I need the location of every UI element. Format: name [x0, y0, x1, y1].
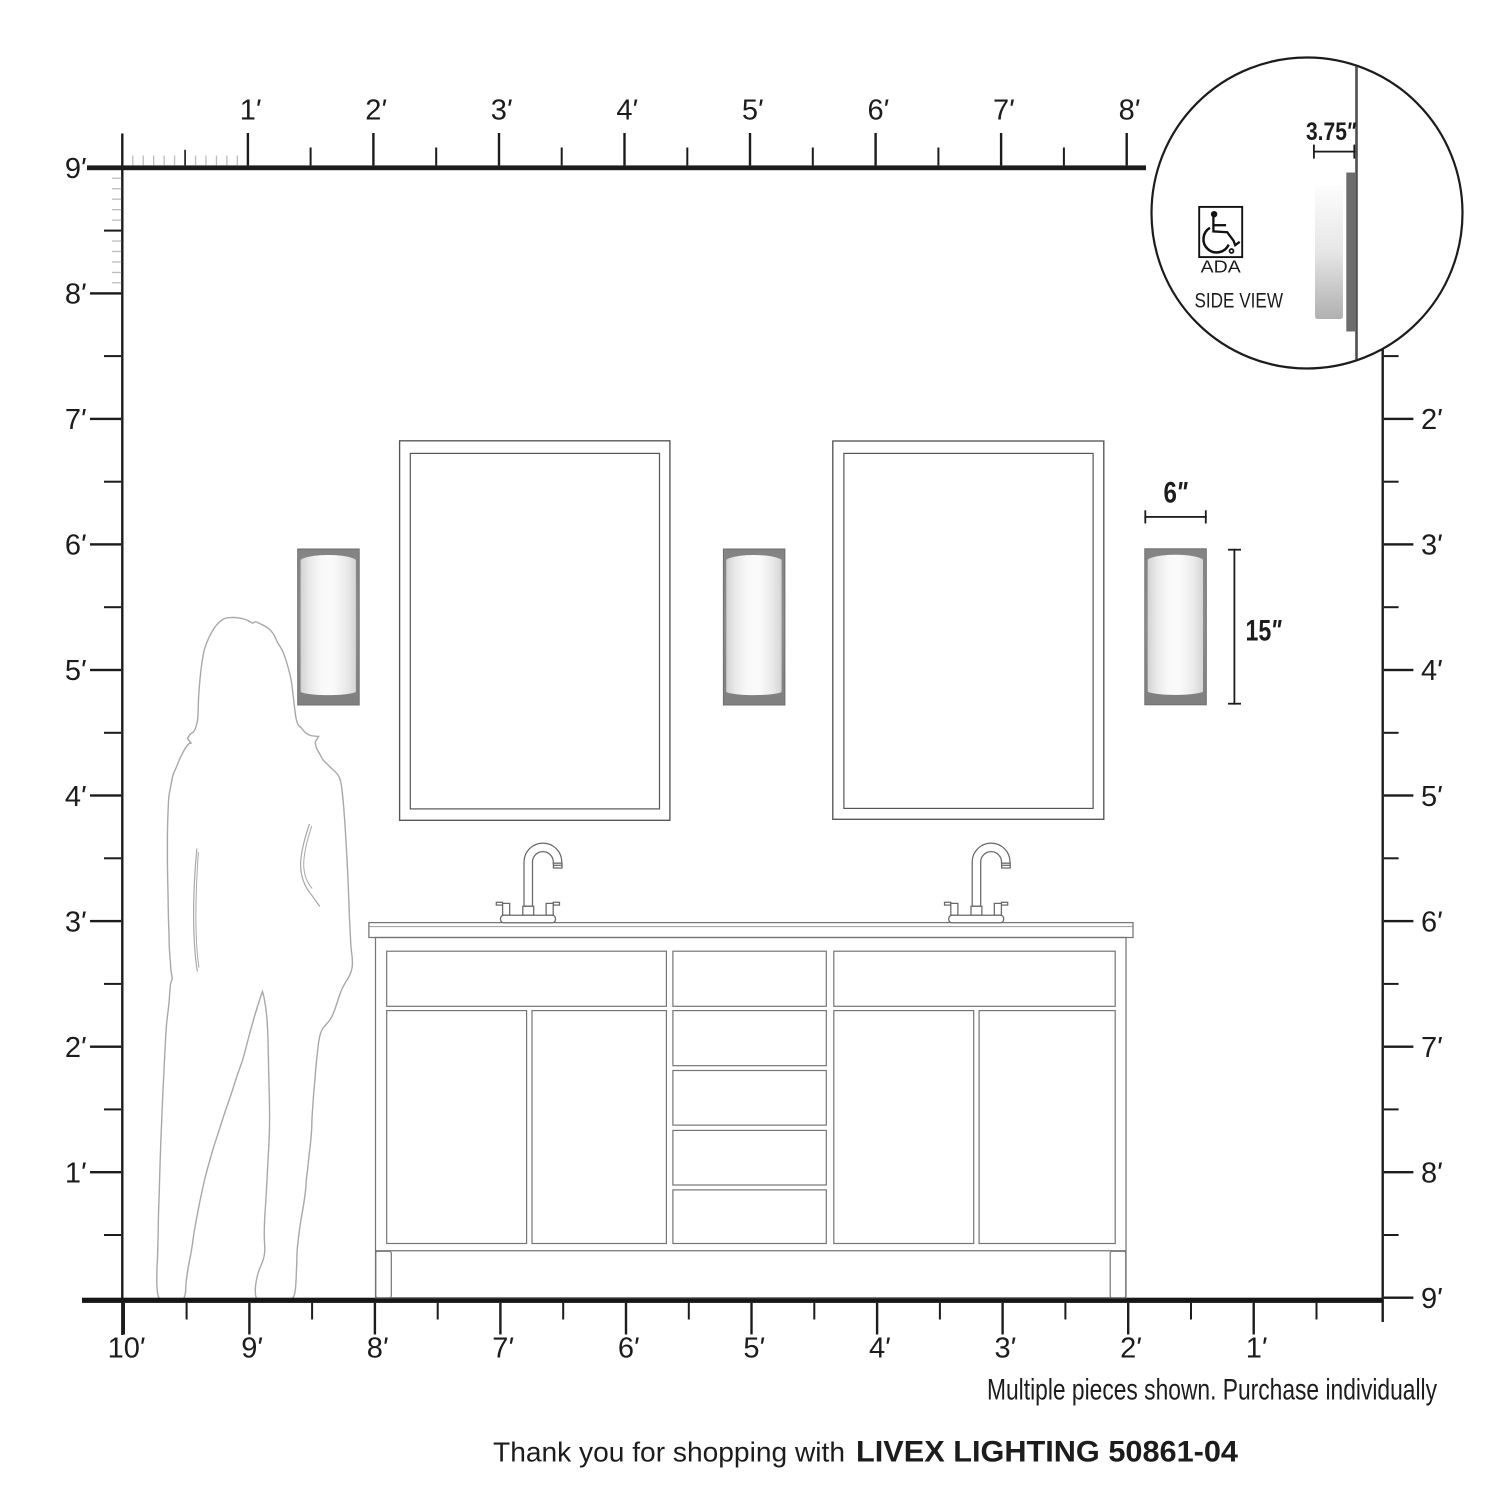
svg-text:6': 6': [868, 95, 890, 127]
svg-text:4': 4': [869, 1333, 891, 1365]
svg-text:8': 8': [1119, 95, 1141, 127]
svg-text:6': 6': [65, 530, 87, 562]
svg-text:5': 5': [742, 95, 764, 127]
svg-text:8': 8': [65, 279, 87, 311]
svg-text:LIVEX LIGHTING 50861-04: LIVEX LIGHTING 50861-04: [856, 1435, 1238, 1468]
svg-text:6': 6': [1421, 906, 1443, 938]
svg-text:2': 2': [365, 95, 387, 127]
svg-text:9': 9': [65, 153, 87, 185]
svg-text:6': 6': [618, 1333, 640, 1365]
svg-text:5': 5': [65, 655, 87, 687]
svg-text:15": 15": [1246, 615, 1283, 648]
svg-text:Thank you for shopping with: Thank you for shopping with: [493, 1436, 845, 1467]
svg-text:7': 7': [492, 1333, 514, 1365]
svg-text:5': 5': [1421, 781, 1443, 813]
svg-text:4': 4': [1421, 655, 1443, 687]
svg-text:5': 5': [743, 1333, 765, 1365]
svg-text:1': 1': [1246, 1333, 1268, 1365]
svg-text:ADA: ADA: [1201, 256, 1241, 276]
svg-text:2': 2': [1421, 404, 1443, 436]
svg-text:3.75": 3.75": [1306, 118, 1357, 146]
svg-text:7': 7': [993, 95, 1015, 127]
svg-text:8': 8': [1421, 1157, 1443, 1189]
svg-text:3': 3': [65, 906, 87, 938]
svg-text:6": 6": [1164, 477, 1189, 510]
svg-text:SIDE VIEW: SIDE VIEW: [1195, 290, 1284, 313]
svg-text:4': 4': [65, 781, 87, 813]
svg-text:4': 4': [616, 95, 638, 127]
svg-text:8': 8': [367, 1333, 389, 1365]
svg-text:2': 2': [1120, 1333, 1142, 1365]
svg-text:7': 7': [65, 404, 87, 436]
svg-text:1': 1': [240, 95, 262, 127]
svg-text:10': 10': [108, 1333, 146, 1365]
svg-text:3': 3': [491, 95, 513, 127]
svg-text:Multiple pieces shown. Purchas: Multiple pieces shown. Purchase individu…: [987, 1374, 1437, 1407]
svg-text:9': 9': [1421, 1283, 1443, 1315]
svg-text:1': 1': [65, 1157, 87, 1189]
svg-text:9': 9': [241, 1333, 263, 1365]
svg-text:3': 3': [1421, 530, 1443, 562]
svg-text:3': 3': [995, 1333, 1017, 1365]
svg-text:2': 2': [65, 1032, 87, 1064]
svg-text:7': 7': [1421, 1032, 1443, 1064]
